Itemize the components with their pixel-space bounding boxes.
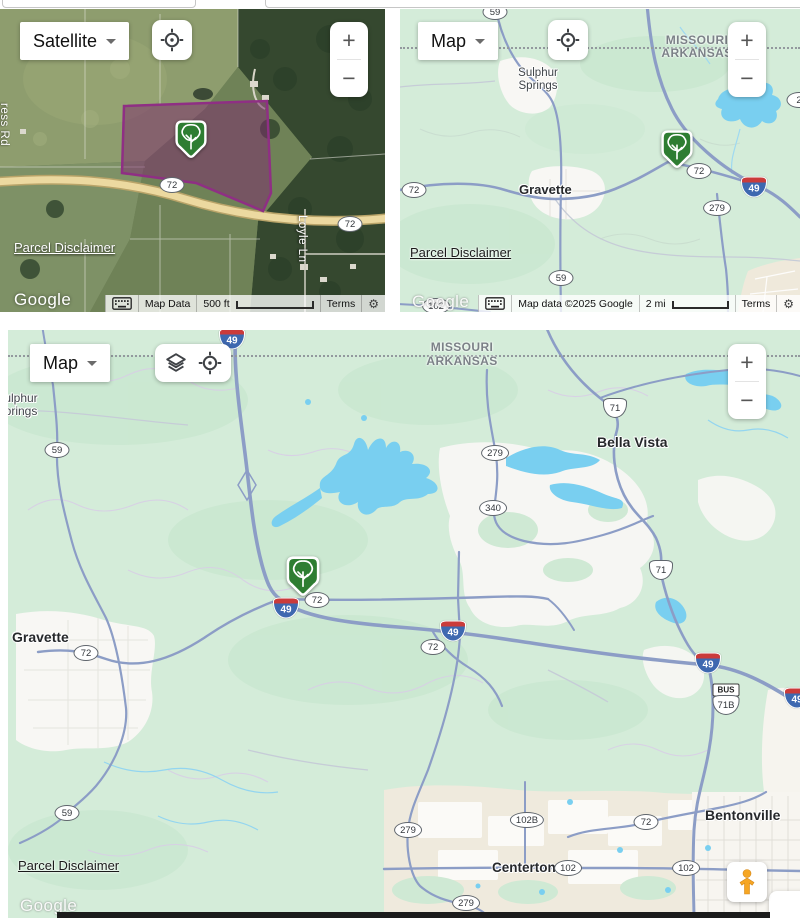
dropdown-arrow-icon [475, 39, 485, 44]
scale-segment: 2 mi [639, 295, 735, 312]
satellite-map-panel[interactable]: 72 72 Loyle Ln ress Rd Satellite + − Par… [0, 9, 385, 312]
route-shield: 102 [672, 860, 700, 876]
map-error-gear-button[interactable]: ⚙ [361, 295, 385, 312]
map-data-label: Map Data [138, 295, 197, 312]
my-location-button[interactable] [548, 20, 588, 60]
route-shield: 72 [160, 177, 185, 193]
scale-label: 2 mi [646, 298, 666, 310]
map-type-button[interactable]: Satellite [20, 22, 129, 60]
scale-bar [236, 301, 314, 309]
layers-button[interactable] [164, 351, 188, 375]
route-shield: 59 [549, 270, 574, 286]
town-label-gravette: Gravette [519, 182, 572, 197]
town-label-centerton: Centerton [492, 860, 556, 875]
route-shield: 59 [45, 442, 70, 458]
crosshair-icon [160, 28, 184, 52]
attribution-bar: Map Data 500 ft Terms ⚙ [105, 295, 385, 312]
state-boundary-line [8, 355, 800, 357]
town-label-line: Sulphur [8, 392, 52, 405]
google-logo[interactable]: Google [412, 292, 469, 312]
map-type-button[interactable]: Map [30, 344, 110, 382]
route-shield: 279 [703, 200, 731, 216]
zoom-out-button[interactable]: − [330, 60, 368, 97]
town-label-bella-vista: Bella Vista [597, 434, 668, 450]
street-label-loyle-ln: Loyle Ln [296, 215, 308, 262]
state-label-north: MISSOURI [416, 340, 508, 354]
parcel-maps-page: 72 72 Loyle Ln ress Rd Satellite + − Par… [0, 0, 800, 918]
pegman-icon [735, 868, 759, 896]
pegman-streetview-control[interactable] [727, 862, 767, 902]
overview-map-panel[interactable]: MISSOURI ARKANSAS Sulphur Springs Gravet… [8, 330, 800, 918]
cropped-corner-control [769, 891, 800, 918]
town-label-gravette: Gravette [12, 629, 69, 645]
keyboard-shortcuts-button[interactable] [478, 295, 511, 312]
map-type-label: Map [43, 353, 78, 374]
town-label-line: Springs [8, 405, 52, 418]
zoom-out-button[interactable]: − [728, 382, 766, 419]
map-attribution-label: Map data ©2025 Google [511, 295, 639, 312]
zoom-in-button[interactable]: + [728, 344, 766, 381]
route-shield: 72 [634, 814, 659, 830]
route-shield: 102 [554, 860, 582, 876]
route-shield: 279 [452, 895, 480, 911]
parcel-disclaimer-link[interactable]: Parcel Disclaimer [18, 858, 119, 873]
scale-segment: 500 ft [196, 295, 319, 312]
scale-bar [672, 301, 729, 309]
zoom-out-button[interactable]: − [728, 60, 766, 97]
scale-label: 500 ft [203, 298, 229, 310]
parcel-disclaimer-link[interactable]: Parcel Disclaimer [14, 240, 115, 255]
route-shield: 279 [394, 822, 422, 838]
zoom-control: + − [728, 344, 766, 419]
route-shield: 340 [479, 500, 507, 516]
keyboard-icon [112, 297, 132, 310]
crosshair-icon [556, 28, 580, 52]
attribution-bar: Map data ©2025 Google 2 mi Terms ⚙ [478, 295, 800, 312]
route-shield: 72 [74, 645, 99, 661]
tree-parcel-marker[interactable] [286, 556, 320, 598]
zoom-in-button[interactable]: + [728, 22, 766, 59]
map-type-label: Satellite [33, 31, 97, 52]
keyboard-shortcuts-button[interactable] [105, 295, 138, 312]
route-shield: 72 [338, 216, 363, 232]
cropped-input-field [2, 0, 196, 8]
parcel-disclaimer-link[interactable]: Parcel Disclaimer [410, 245, 511, 260]
town-label-line: Springs [503, 80, 573, 93]
state-label-south: ARKANSAS [414, 354, 510, 368]
dropdown-arrow-icon [87, 361, 97, 366]
terms-link[interactable]: Terms [320, 295, 362, 312]
cropped-bottom-bar [57, 912, 770, 918]
my-location-button[interactable] [198, 351, 222, 375]
map-error-gear-button[interactable]: ⚙ [776, 295, 800, 312]
route-shield: 59 [55, 805, 80, 821]
regional-map-panel[interactable]: MISSOURI ARKANSAS Sulphur Springs Gravet… [400, 9, 800, 312]
layers-icon [164, 351, 188, 375]
zoom-control: + − [330, 22, 368, 97]
town-label-line: Sulphur [503, 67, 573, 80]
tree-parcel-marker[interactable] [661, 130, 693, 170]
route-shield: 279 [481, 445, 509, 461]
map-tools-pill [155, 344, 231, 382]
map-type-button[interactable]: Map [418, 22, 498, 60]
my-location-button[interactable] [152, 20, 192, 60]
terms-link[interactable]: Terms [735, 295, 777, 312]
google-logo[interactable]: Google [14, 290, 71, 310]
zoom-in-button[interactable]: + [330, 22, 368, 59]
cropped-input-field [265, 0, 800, 8]
crosshair-icon [198, 351, 222, 375]
street-label-ress-rd: ress Rd [0, 103, 10, 146]
zoom-control: + − [728, 22, 766, 97]
town-label-sulphur-springs: Sulphur Springs [503, 67, 573, 92]
tree-parcel-marker[interactable] [175, 120, 207, 160]
keyboard-icon [485, 297, 505, 310]
route-shield: 102B [510, 812, 544, 828]
town-label-bentonville: Bentonville [705, 807, 780, 823]
route-shield: 72 [421, 639, 446, 655]
map-type-label: Map [431, 31, 466, 52]
dropdown-arrow-icon [106, 39, 116, 44]
route-shield: 72 [402, 182, 427, 198]
town-label-sulphur-springs: Sulphur Springs [8, 392, 52, 417]
